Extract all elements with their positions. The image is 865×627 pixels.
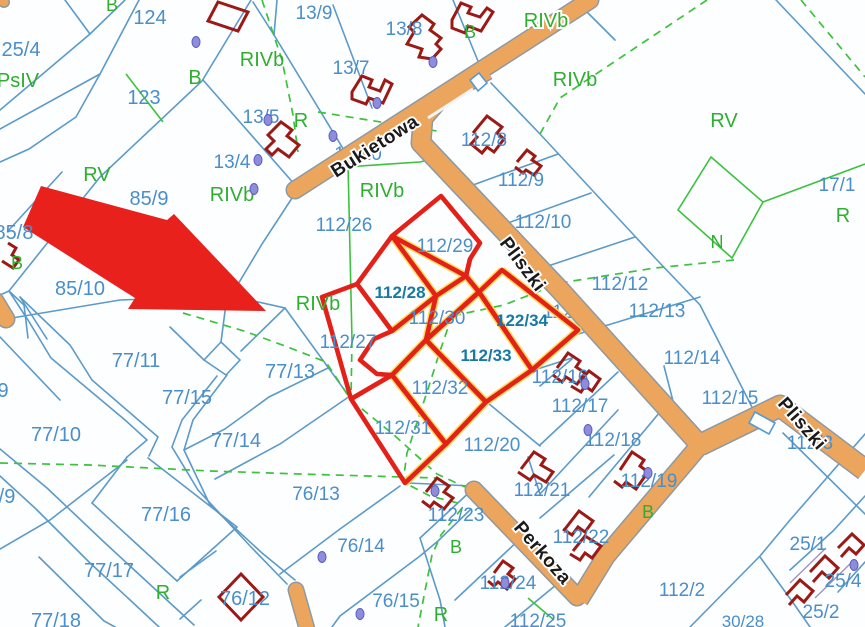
svg-text:76/13: 76/13 <box>292 484 340 505</box>
svg-text:112/2: 112/2 <box>659 580 705 601</box>
svg-text:B: B <box>642 502 654 522</box>
svg-text:13/5: 13/5 <box>243 107 280 128</box>
svg-text:13/7: 13/7 <box>333 58 370 79</box>
svg-text:76/14: 76/14 <box>337 536 385 557</box>
svg-text:13/9: 13/9 <box>296 3 333 24</box>
svg-text:77/18: 77/18 <box>31 610 81 627</box>
svg-text:112/12: 112/12 <box>592 274 649 295</box>
svg-text:77/16: 77/16 <box>141 504 191 526</box>
svg-text:112/26: 112/26 <box>316 215 373 236</box>
svg-text:30/28: 30/28 <box>722 612 765 627</box>
svg-text:RIVb: RIVb <box>360 180 404 202</box>
svg-text:RV: RV <box>710 110 738 132</box>
svg-text:RIVb: RIVb <box>553 69 597 91</box>
svg-text:112/33: 112/33 <box>460 346 511 365</box>
svg-text:76/15: 76/15 <box>372 591 420 612</box>
svg-text:85/9: 85/9 <box>130 188 169 210</box>
svg-text:25/4: 25/4 <box>825 571 862 592</box>
svg-text:112/22: 112/22 <box>553 527 610 548</box>
svg-text:17/1: 17/1 <box>819 175 856 196</box>
svg-text:76/12: 76/12 <box>220 588 270 610</box>
svg-text:R: R <box>294 110 308 132</box>
svg-text:112/28: 112/28 <box>374 283 425 302</box>
svg-text:RIVb: RIVb <box>210 184 254 206</box>
svg-text:B: B <box>11 253 23 273</box>
svg-text:122/34: 122/34 <box>496 311 549 330</box>
svg-text:112/30: 112/30 <box>409 308 466 329</box>
svg-text:77/15: 77/15 <box>162 387 212 409</box>
svg-text:77/17: 77/17 <box>84 560 134 582</box>
svg-text:112/16: 112/16 <box>532 367 589 388</box>
svg-text:77/14: 77/14 <box>211 430 261 452</box>
svg-text:13/8: 13/8 <box>386 19 423 40</box>
svg-text:77/10: 77/10 <box>31 424 81 446</box>
svg-text:RV: RV <box>83 164 111 186</box>
svg-text:R: R <box>836 205 850 227</box>
svg-text:13/4: 13/4 <box>214 152 251 173</box>
svg-text:112/31: 112/31 <box>375 418 432 439</box>
svg-text:112/18: 112/18 <box>585 430 642 451</box>
svg-text:B: B <box>450 537 462 557</box>
svg-text:112/32: 112/32 <box>412 378 469 399</box>
svg-text:124: 124 <box>133 7 166 29</box>
svg-text:112/9: 112/9 <box>498 170 544 191</box>
svg-text:RIVb: RIVb <box>296 293 340 315</box>
svg-text:112/29: 112/29 <box>417 236 474 257</box>
svg-text:RIVb: RIVb <box>240 49 284 71</box>
svg-text:/9: /9 <box>0 486 15 508</box>
svg-text:112/13: 112/13 <box>629 301 686 322</box>
svg-text:112/14: 112/14 <box>664 348 721 369</box>
svg-text:PsIV: PsIV <box>0 70 40 92</box>
svg-text:112/20: 112/20 <box>464 435 521 456</box>
svg-text:25/1: 25/1 <box>790 534 827 555</box>
svg-text:R: R <box>156 582 170 604</box>
svg-text:112/17: 112/17 <box>552 396 609 417</box>
svg-text:112/15: 112/15 <box>702 388 759 409</box>
svg-text:25/2: 25/2 <box>803 602 840 623</box>
svg-text:B: B <box>464 22 476 42</box>
svg-text:112/27: 112/27 <box>320 332 377 353</box>
svg-text:123: 123 <box>127 87 160 109</box>
svg-text:112/8: 112/8 <box>461 130 507 151</box>
svg-text:N: N <box>711 232 724 252</box>
svg-text:9: 9 <box>0 380 9 402</box>
svg-text:R: R <box>434 604 448 626</box>
svg-text:85/10: 85/10 <box>55 278 105 300</box>
svg-text:B: B <box>106 0 118 15</box>
svg-text:77/11: 77/11 <box>112 350 161 372</box>
svg-text:112/21: 112/21 <box>514 480 571 501</box>
svg-text:77/13: 77/13 <box>265 361 315 383</box>
svg-text:112/23: 112/23 <box>428 505 485 526</box>
svg-text:85/8: 85/8 <box>0 222 33 244</box>
svg-text:112/25: 112/25 <box>510 611 567 627</box>
svg-text:25/4: 25/4 <box>2 39 41 61</box>
svg-text:RIVb: RIVb <box>524 10 568 32</box>
svg-text:B: B <box>188 67 201 89</box>
svg-text:112/10: 112/10 <box>515 212 572 233</box>
